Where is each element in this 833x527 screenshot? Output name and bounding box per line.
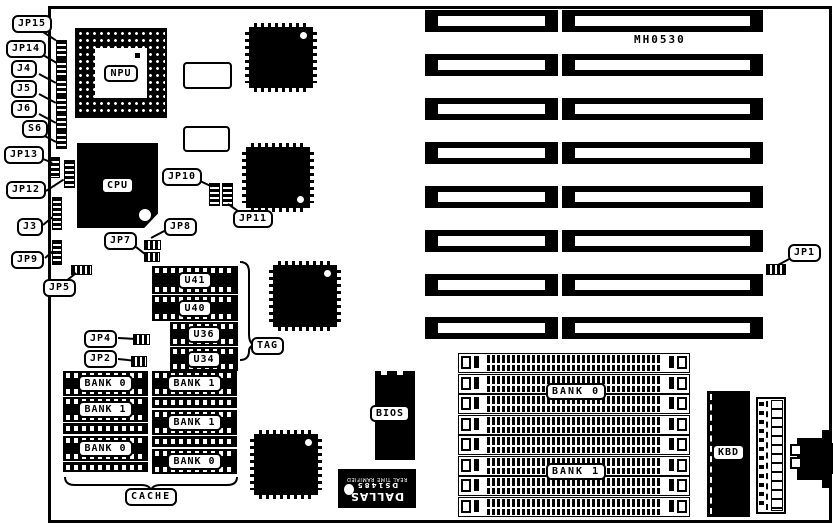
jumper-j5 [56,95,67,112]
callout-j4: J4 [11,60,37,78]
isa-slot-3 [425,98,763,120]
callout-jp1: JP1 [788,244,821,262]
cache-socket-empty [63,423,148,434]
isa-slot-segment [425,186,558,208]
power-connector [756,397,786,514]
chip-u40: U40 [152,295,238,321]
u40-label: U40 [178,300,211,317]
qfp-chip-2 [246,147,310,208]
callout-jp10: JP10 [162,168,202,186]
isa-slot-1 [425,10,763,32]
u34-label: U34 [187,351,220,368]
npu-socket: NPU [75,28,167,118]
isa-slot-segment [425,274,558,296]
power-connector-pins [771,400,783,511]
simm-socket-8 [458,497,690,517]
din-connector-tab [790,444,802,456]
qfp-chip-1 [249,27,313,88]
oscillator-1 [183,62,232,89]
cache-socket-bank: BANK 0 [63,436,148,461]
callout-jp15: JP15 [12,15,52,33]
jumper-jp12 [64,160,75,188]
simm-socket-4 [458,415,690,435]
isa-slot-segment [562,230,763,252]
bank-label: BANK 0 [78,440,132,457]
cpu-chip: CPU [77,143,158,228]
npu-label: NPU [104,65,137,82]
callout-s6: S6 [22,120,48,138]
isa-slot-4 [425,142,763,164]
isa-slot-segment [425,98,558,120]
cache-socket-bank: BANK 0 [63,371,148,396]
isa-slot-6 [425,230,763,252]
isa-slot-8 [425,317,763,339]
callout-j5: J5 [11,80,37,98]
chip-u34: U34 [170,347,238,371]
bios-label: BIOS [370,405,410,422]
callout-jp2: JP2 [84,350,117,368]
bank-label: BANK 0 [78,375,132,392]
din-connector-tab [790,457,802,469]
cpu-pin1-dot [139,209,151,221]
isa-slot-segment [562,142,763,164]
npu-socket-core: NPU [95,48,147,98]
isa-slot-5 [425,186,763,208]
jumper-j6 [56,112,67,130]
isa-slot-segment [562,10,763,32]
callout-jp11: JP11 [233,210,273,228]
memory-bank1-label: BANK 1 [546,463,606,480]
cache-socket-bank: BANK 0 [152,449,237,474]
keyboard-din-connector-bump [829,443,833,474]
board-model-text: MH0530 [634,33,686,46]
isa-slot-segment [425,230,558,252]
simm-socket-1 [458,353,690,373]
jumper-j3 [52,197,62,230]
bank-label: BANK 1 [78,401,132,418]
callout-jp5: JP5 [43,279,76,297]
cache-socket-bank: BANK 1 [152,410,237,435]
callout-cache: CACHE [125,488,177,506]
jumper-jp15 [56,40,67,59]
chip-u36: U36 [170,322,238,346]
isa-slot-2 [425,54,763,76]
isa-slot-segment [425,10,558,32]
callout-j3: J3 [17,218,43,236]
isa-slot-segment [425,142,558,164]
callout-jp14: JP14 [6,40,46,58]
jumper-s6 [56,130,67,149]
callout-jp7: JP7 [104,232,137,250]
jumper-j4 [56,77,67,95]
callout-j6: J6 [11,100,37,118]
jumper-jp2 [131,356,147,367]
power-connector-divider [766,401,768,510]
callout-jp9: JP9 [11,251,44,269]
bios-chip-notch [381,371,387,375]
isa-slot-segment [562,186,763,208]
u41-label: U41 [178,272,211,289]
isa-slot-segment [562,317,763,339]
callout-jp4: JP4 [84,330,117,348]
cache-socket-empty [152,397,237,408]
rtc-chip: DALLAS DS1485 REAL TIME RAMIFIED [338,469,416,508]
memory-bank0-label: BANK 0 [546,383,606,400]
isa-slot-7 [425,274,763,296]
oscillator-2 [183,126,230,152]
jumper-jp9 [52,240,62,265]
jumper-jp14 [56,59,67,77]
bank-label: BANK 1 [167,375,221,392]
callout-tag: TAG [251,337,284,355]
qfp-chip-3 [273,265,337,327]
isa-slot-segment [425,54,558,76]
callout-jp12: JP12 [6,181,46,199]
jumper-jp4 [133,334,150,345]
isa-slot-segment [562,54,763,76]
npu-pin1-mark [135,53,140,58]
bank-label: BANK 1 [167,414,221,431]
jumper-jp13 [50,157,60,178]
power-connector-clips [759,402,764,509]
cache-socket-empty [63,462,148,472]
jumper-jp1 [766,264,786,275]
isa-slot-segment [562,274,763,296]
rtc-brand-text: DALLAS [350,489,404,502]
bios-chip-notch [397,371,403,375]
bank-label: BANK 0 [167,453,221,470]
dallas-logo-icon [344,484,354,495]
rtc-part-text: DS1485 [356,481,398,489]
cache-socket-empty [152,436,237,447]
qfp-chip-4 [254,434,318,495]
jumper-jp8 [144,240,161,250]
simm-socket-5 [458,435,690,455]
callout-jp8: JP8 [164,218,197,236]
cache-socket-bank: BANK 1 [152,371,237,396]
callout-jp13: JP13 [4,146,44,164]
rtc-desc-text: REAL TIME RAMIFIED [347,475,408,481]
u36-label: U36 [187,326,220,343]
isa-slot-segment [562,98,763,120]
chip-u41: U41 [152,266,238,294]
cache-socket-bank: BANK 1 [63,397,148,422]
cpu-label: CPU [101,177,134,194]
motherboard-diagram: MH0530 JP1 NPU CPU [0,0,833,527]
isa-slot-segment [425,317,558,339]
kbd-label: KBD [712,444,745,461]
